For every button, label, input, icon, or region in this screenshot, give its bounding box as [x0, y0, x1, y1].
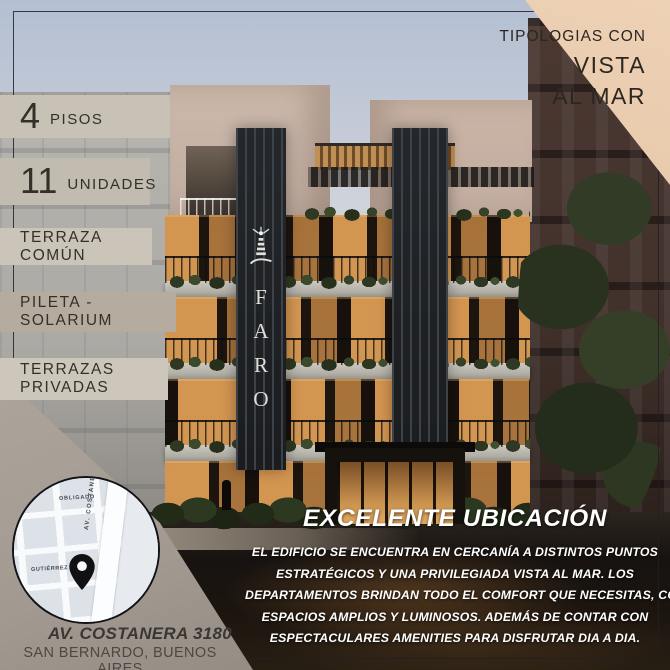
- badge-unidades: 11 UNIDADES: [0, 158, 150, 205]
- location-map: OBLIGADO AV. COSTANERA GUTIÉRREZ: [12, 476, 160, 624]
- banner-line-2: VISTA: [499, 52, 646, 79]
- address-line-2: SAN BERNARDO, BUENOS AIRES: [8, 645, 232, 670]
- badge-label: PISOS: [50, 105, 103, 128]
- banner-line-3: AL MAR: [499, 83, 646, 110]
- badge-label: TERRAZAS PRIVADAS: [20, 361, 168, 397]
- location-body-line: DEPARTAMENTOS BRINDAN TODO EL COMFORT QU…: [245, 585, 665, 607]
- badge-value: 4: [20, 98, 40, 134]
- badge-pileta-solarium: PILETA - SOLARIUM: [0, 292, 176, 332]
- location-body-line: ESPACIOS AMPLIOS Y LUMINOSOS. ADEMÁS DE …: [245, 607, 665, 629]
- vista-banner-text: TIPOLOGIAS CON VISTA AL MAR: [499, 28, 646, 110]
- badge-value: 11: [20, 163, 57, 199]
- location-title: EXCELENTE UBICACIÓN: [245, 505, 665, 533]
- badge-pisos: 4 PISOS: [0, 95, 170, 138]
- badge-label: TERRAZA COMÚN: [20, 229, 152, 265]
- location-body-line: ESTRATÉGICOS Y UNA PRIVILEGIADA VISTA AL…: [245, 564, 665, 586]
- badge-terrazas-privadas: TERRAZAS PRIVADAS: [0, 358, 168, 400]
- location-section: EXCELENTE UBICACIÓN EL EDIFICIO SE ENCUE…: [245, 505, 665, 650]
- location-body-line: ESPECTACULARES AMENITIES PARA DISFRUTAR …: [245, 628, 665, 650]
- map-pin-icon: [69, 554, 95, 590]
- address-line-1: AV. COSTANERA 3180: [40, 624, 240, 644]
- badge-terraza-comun: TERRAZA COMÚN: [0, 228, 152, 265]
- banner-line-1: TIPOLOGIAS CON: [499, 28, 646, 46]
- location-body-line: EL EDIFICIO SE ENCUENTRA EN CERCANÍA A D…: [245, 542, 665, 564]
- flyer-root: F A R O TIPOLOGIAS CON VISTA AL MAR 4 PI…: [0, 0, 670, 670]
- badge-label: UNIDADES: [67, 170, 157, 193]
- badge-label: PILETA - SOLARIUM: [20, 294, 176, 330]
